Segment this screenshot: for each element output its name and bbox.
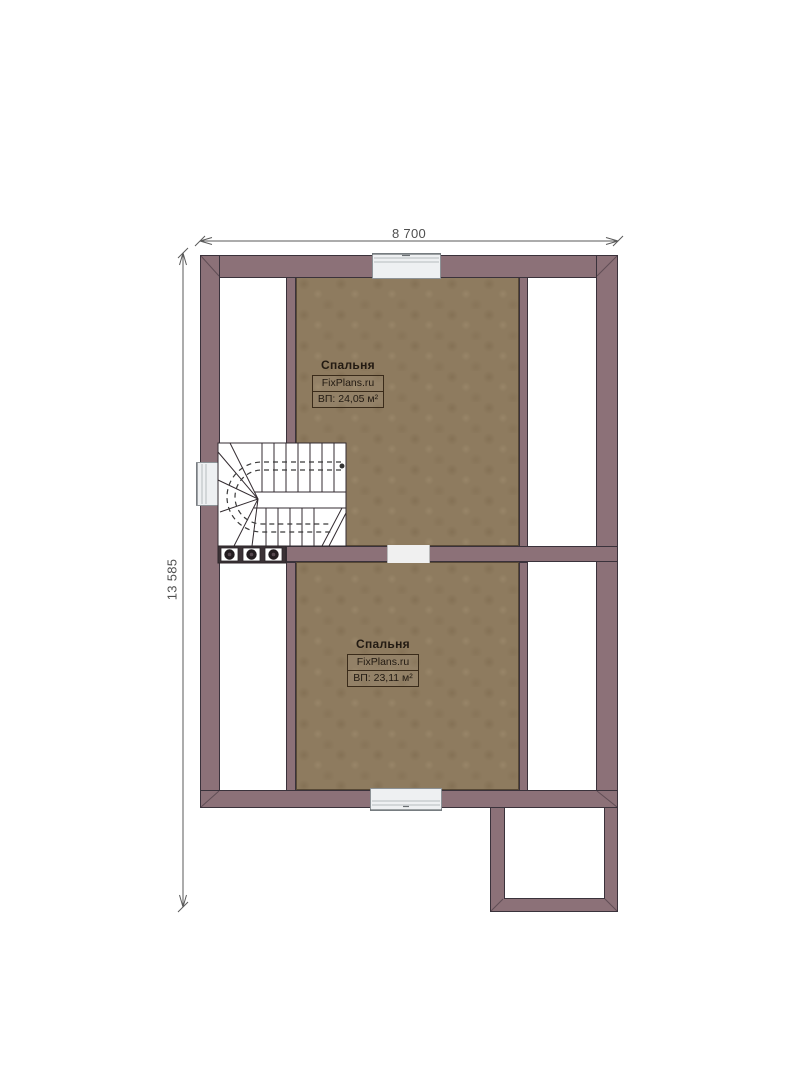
wall-interior-lower-left <box>286 562 296 791</box>
wall-interior-upper-right <box>519 277 528 547</box>
stair-railing-posts <box>218 546 286 563</box>
annex-extension <box>490 790 618 912</box>
window-top <box>372 253 441 279</box>
room-name: Спальня <box>288 358 408 372</box>
room-info-box: FixPlans.ru ВП: 24,05 м² <box>312 375 384 408</box>
dimension-width-label: 8 700 <box>359 226 459 241</box>
room-brand: FixPlans.ru <box>313 376 383 391</box>
room-area: ВП: 23,11 м² <box>348 670 418 686</box>
window-left <box>196 462 219 506</box>
bedroom-1-floor <box>296 277 519 546</box>
dimension-height-label: 13 585 <box>165 540 180 620</box>
wall-left <box>200 255 220 808</box>
wall-middle <box>286 546 618 562</box>
room-info-box: FixPlans.ru ВП: 23,11 м² <box>347 654 419 687</box>
door-opening <box>387 545 430 563</box>
room-area: ВП: 24,05 м² <box>313 391 383 407</box>
bedroom-1-label: Спальня FixPlans.ru ВП: 24,05 м² <box>288 358 408 408</box>
wall-interior-lower-right <box>519 562 528 791</box>
floor-plan-canvas: 8 700 13 585 Спальня FixPlans.ru ВП: 24,… <box>0 0 792 1080</box>
bedroom-2-label: Спальня FixPlans.ru ВП: 23,11 м² <box>323 637 443 687</box>
window-bottom <box>370 788 442 811</box>
wall-right <box>596 255 618 808</box>
room-name: Спальня <box>323 637 443 651</box>
room-brand: FixPlans.ru <box>348 655 418 670</box>
